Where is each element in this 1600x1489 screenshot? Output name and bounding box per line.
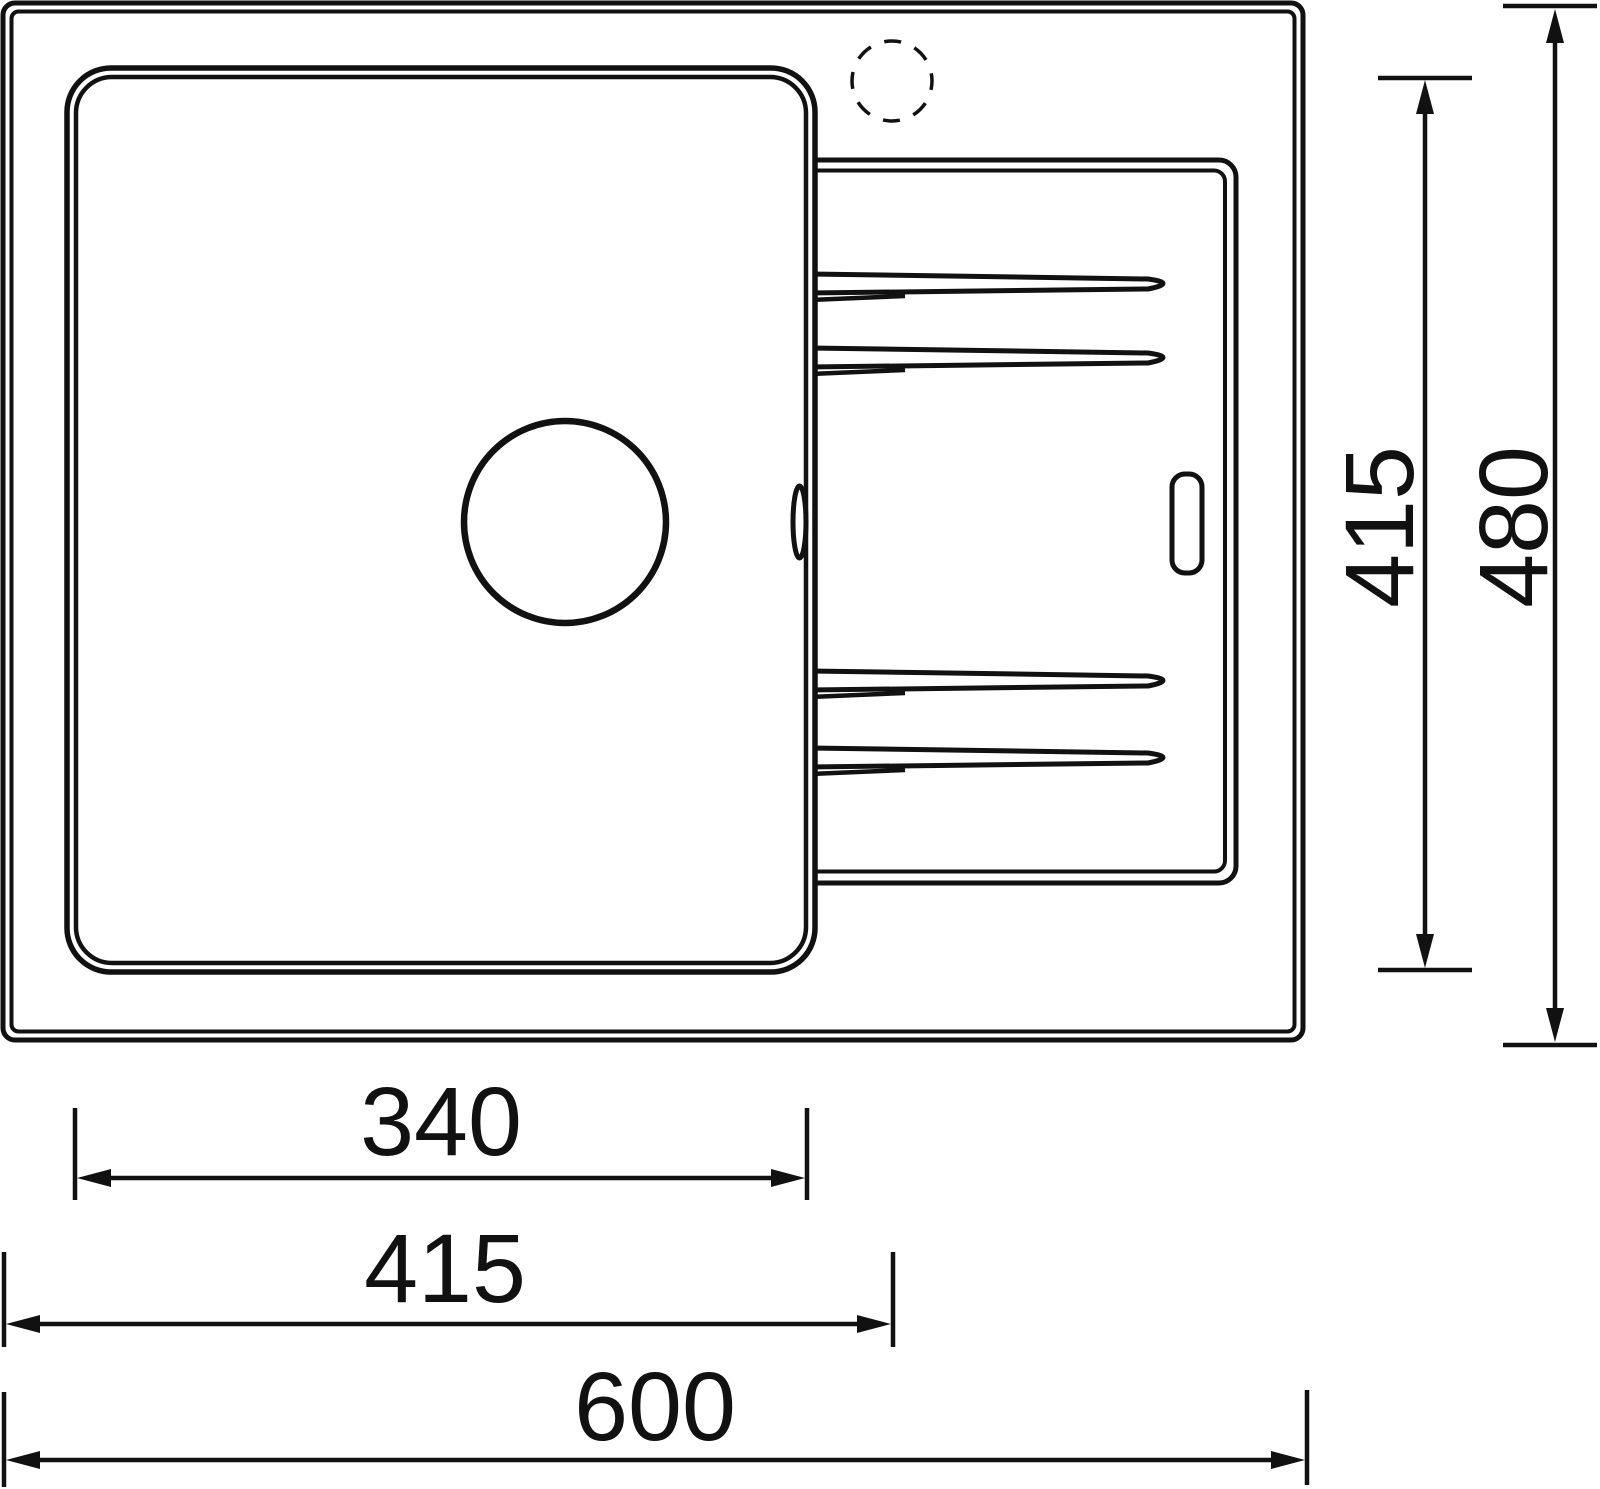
dim-overall-width: 600 xyxy=(4,1352,1307,1487)
dim-bowl-width: 340 xyxy=(75,1067,807,1200)
dim-overall-width-arrow-left xyxy=(6,1451,40,1469)
dim-bowl-depth: 415 xyxy=(1325,78,1472,970)
drainer-groove-3 xyxy=(810,671,1163,690)
bowl-outer-line xyxy=(67,68,815,972)
drainer-groove-1 xyxy=(810,274,1163,293)
dim-bowl-width-label: 340 xyxy=(360,1067,522,1176)
dim-bowl-depth-arrow-up xyxy=(1416,80,1434,114)
drainer-board xyxy=(790,160,1236,883)
drainer-outer-line xyxy=(790,160,1236,883)
dim-overall-depth: 480 xyxy=(1459,6,1597,1045)
overflow-slot xyxy=(793,486,806,558)
dim-overall-width-arrow-right xyxy=(1271,1451,1305,1469)
dim-bowl-width-arrow-right xyxy=(771,1169,805,1187)
drain-hole xyxy=(464,421,666,623)
dim-overall-width-label: 600 xyxy=(574,1352,736,1461)
drainer-groove-4 xyxy=(810,748,1163,767)
dim-overall-depth-arrow-down xyxy=(1546,1008,1564,1042)
dim-left-to-tap: 415 xyxy=(4,1214,893,1347)
dim-bowl-width-arrow-left xyxy=(77,1169,111,1187)
dim-bowl-depth-label: 415 xyxy=(1325,446,1434,608)
dim-left-to-tap-arrow-left xyxy=(6,1315,40,1333)
main-bowl xyxy=(67,68,815,972)
dim-overall-depth-arrow-up xyxy=(1546,9,1564,43)
dim-left-to-tap-label: 415 xyxy=(364,1214,526,1323)
sink-technical-drawing: 415 480 340 415 600 xyxy=(0,0,1600,1489)
dim-overall-depth-label: 480 xyxy=(1459,446,1568,608)
dim-left-to-tap-arrow-right xyxy=(857,1315,891,1333)
drainer-groove-2 xyxy=(810,348,1163,367)
drainer-slot xyxy=(1172,474,1202,573)
dim-bowl-depth-arrow-down xyxy=(1416,934,1434,968)
